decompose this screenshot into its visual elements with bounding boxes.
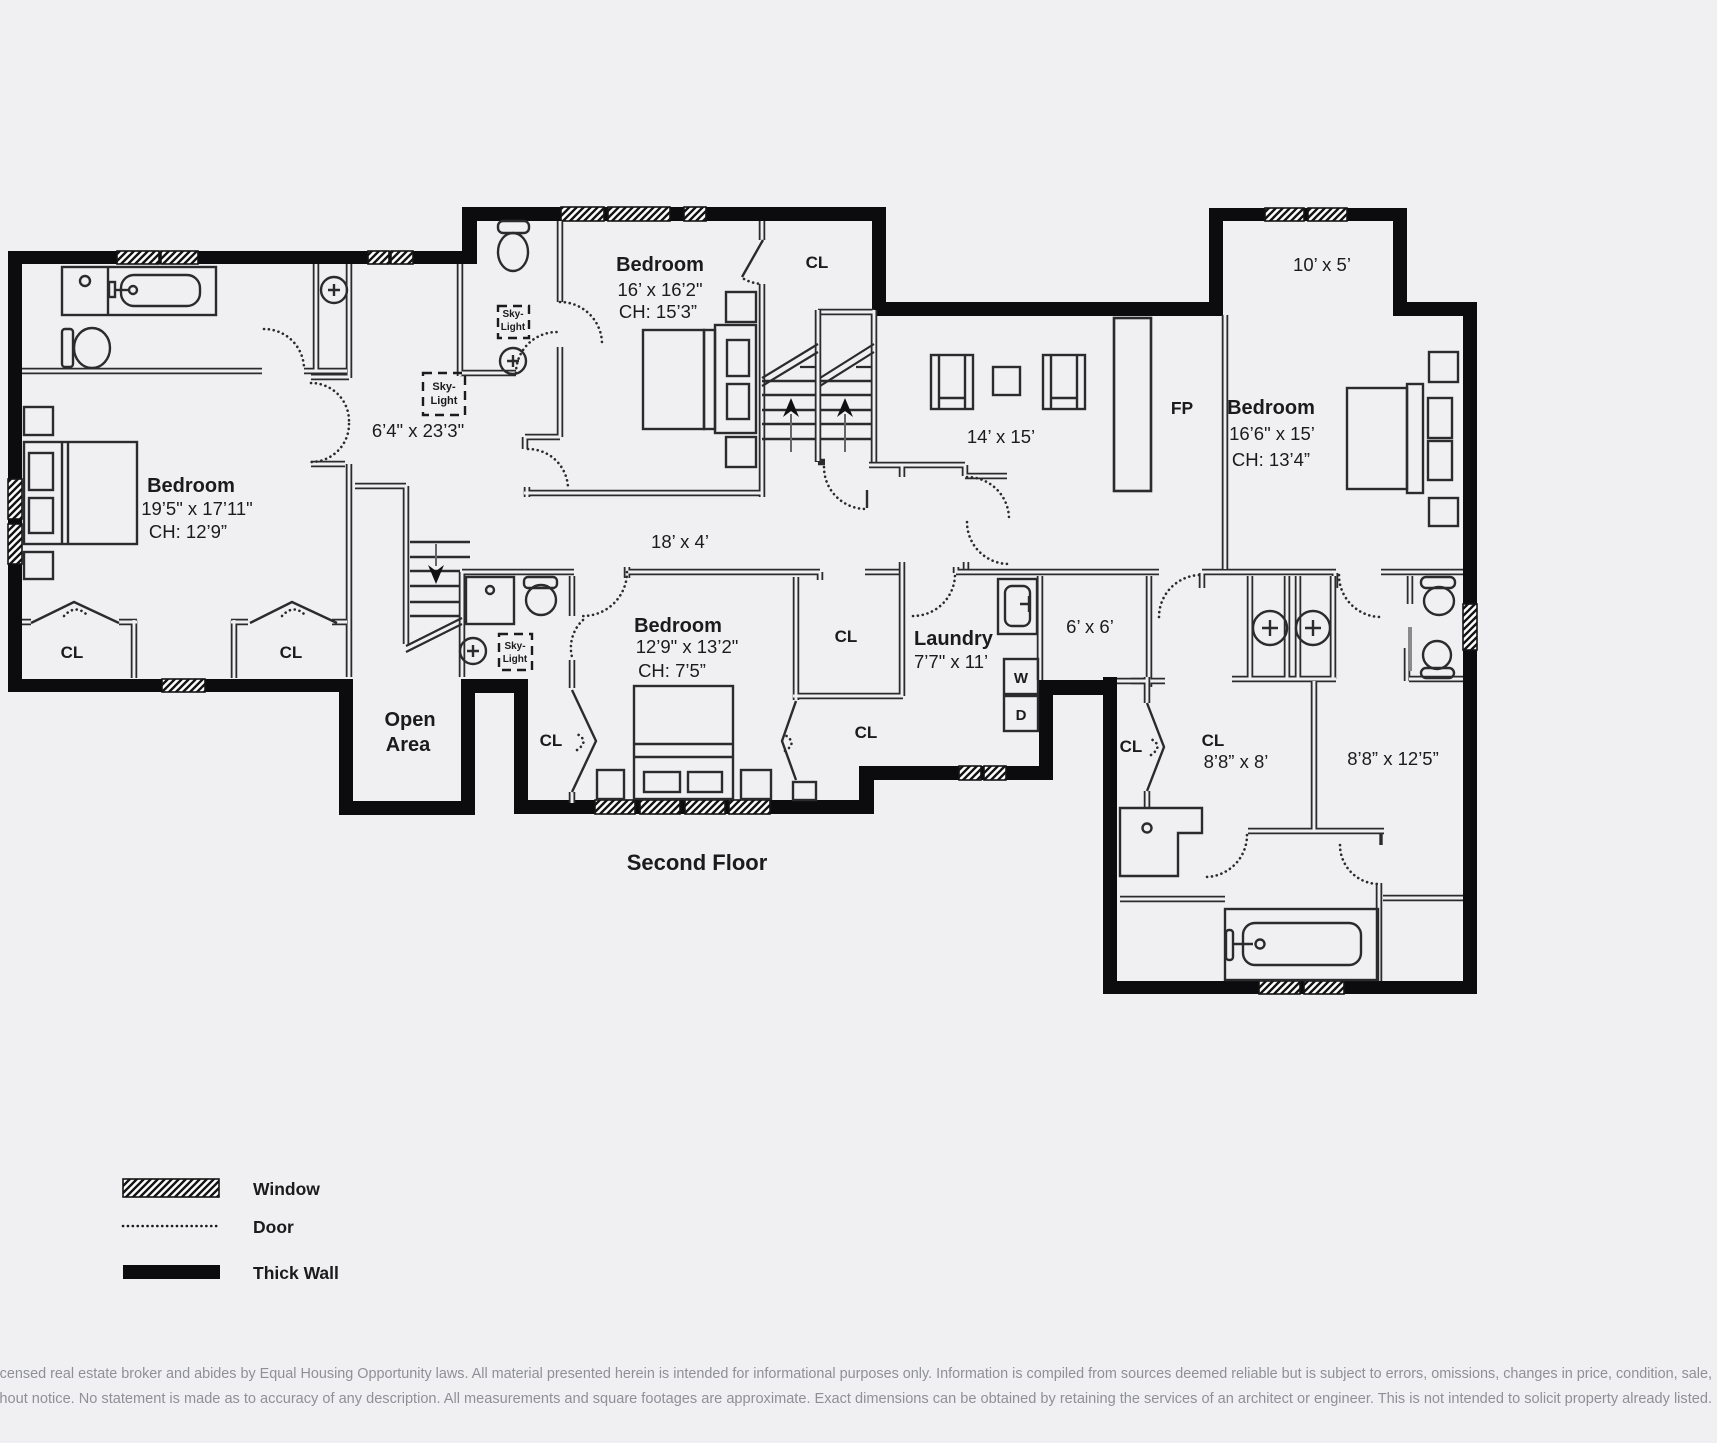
svg-text:10’ x 5’: 10’ x 5’ <box>1293 254 1351 275</box>
svg-text:Bedroom: Bedroom <box>616 254 704 276</box>
svg-text:CH: 15’3”: CH: 15’3” <box>619 301 697 322</box>
svg-text:Sky-: Sky- <box>504 641 525 652</box>
svg-text:or withdrawal without notice.: or withdrawal without notice. No stateme… <box>0 1391 1712 1407</box>
svg-text:Light: Light <box>501 322 526 333</box>
svg-text:Laundry: Laundry <box>914 628 994 650</box>
svg-text:Thick Wall: Thick Wall <box>253 1263 339 1283</box>
svg-text:Window: Window <box>253 1179 320 1199</box>
svg-text:CL: CL <box>835 627 858 646</box>
svg-text:14’ x 15’: 14’ x 15’ <box>967 426 1035 447</box>
svg-text:CL: CL <box>1202 731 1225 750</box>
svg-text:CL: CL <box>855 723 878 742</box>
svg-text:6’4" x 23’3": 6’4" x 23’3" <box>372 420 464 441</box>
svg-text:Open: Open <box>384 709 435 731</box>
svg-text:Sky-: Sky- <box>502 309 523 320</box>
svg-text:CL: CL <box>1120 737 1143 756</box>
svg-text:CH: 12’9”: CH: 12’9” <box>149 521 227 542</box>
svg-text:7’7" x 11’: 7’7" x 11’ <box>914 651 988 672</box>
svg-text:16’6" x 15’: 16’6" x 15’ <box>1229 423 1315 444</box>
svg-text:FP: FP <box>1171 398 1194 418</box>
svg-text:12’9" x 13’2": 12’9" x 13’2" <box>636 636 739 657</box>
svg-text:8’8” x 12’5”: 8’8” x 12’5” <box>1347 748 1439 769</box>
svg-text:CL: CL <box>61 643 84 662</box>
svg-text:censed real estate broker and: censed real estate broker and abides by … <box>0 1366 1712 1382</box>
svg-text:19’5" x 17’11": 19’5" x 17’11" <box>141 498 253 519</box>
svg-text:Bedroom: Bedroom <box>634 615 722 637</box>
svg-text:CL: CL <box>280 643 303 662</box>
svg-text:Light: Light <box>431 395 458 407</box>
svg-text:Light: Light <box>503 654 528 665</box>
svg-text:CH: 7’5”: CH: 7’5” <box>638 660 706 681</box>
svg-text:Door: Door <box>253 1217 294 1237</box>
svg-text:Bedroom: Bedroom <box>1227 397 1315 419</box>
svg-text:Second Floor: Second Floor <box>627 850 768 875</box>
svg-text:18’ x 4’: 18’ x 4’ <box>651 531 709 552</box>
svg-text:CH: 13’4”: CH: 13’4” <box>1232 449 1310 470</box>
svg-text:D: D <box>1016 707 1027 724</box>
svg-text:Bedroom: Bedroom <box>147 475 235 497</box>
svg-text:Area: Area <box>386 734 431 756</box>
svg-text:CL: CL <box>540 731 563 750</box>
svg-text:16’ x 16’2": 16’ x 16’2" <box>617 279 702 300</box>
svg-text:8’8” x 8’: 8’8” x 8’ <box>1204 751 1269 772</box>
svg-text:Sky-: Sky- <box>432 381 456 393</box>
svg-text:CL: CL <box>806 253 829 272</box>
svg-text:6’ x 6’: 6’ x 6’ <box>1066 616 1114 637</box>
svg-text:W: W <box>1014 670 1029 687</box>
